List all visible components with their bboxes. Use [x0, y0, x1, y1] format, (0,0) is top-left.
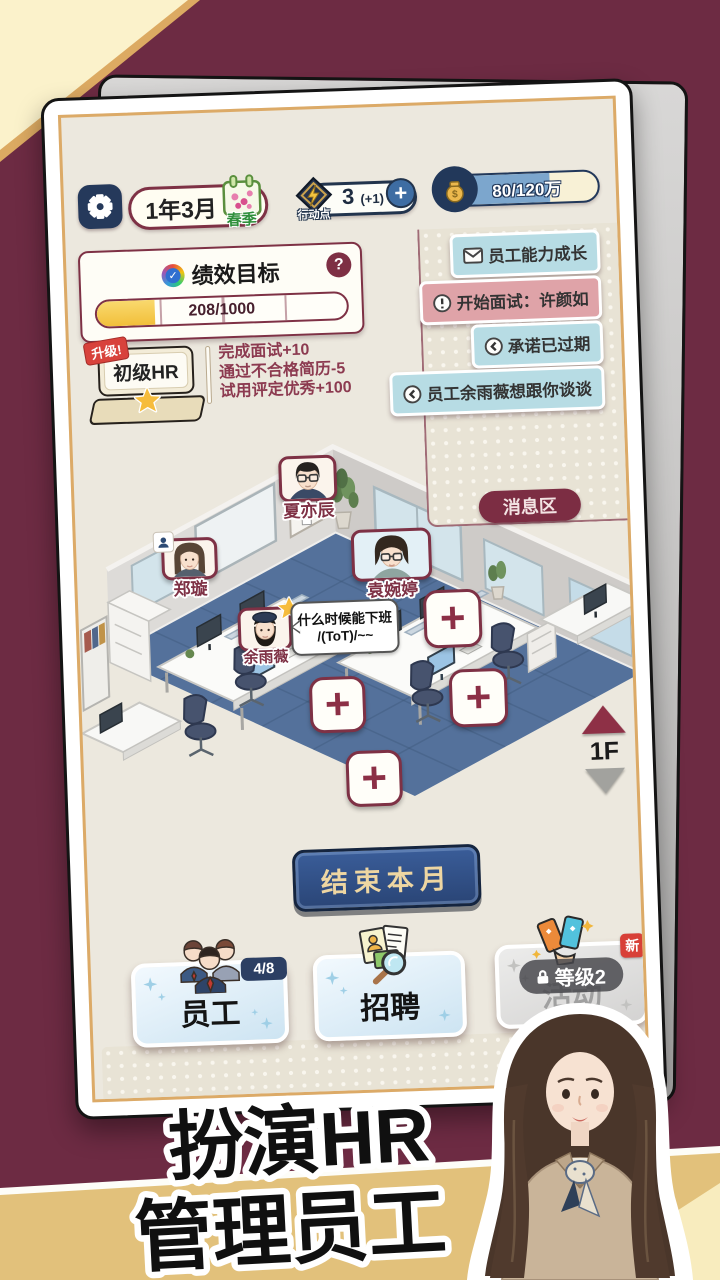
back-icon	[483, 336, 503, 356]
add-desk-button[interactable]: +	[449, 668, 509, 728]
speech-bubble: 什么时候能下班 /(ToT)/~~	[290, 598, 400, 656]
lock-icon	[536, 969, 550, 984]
hr-woman-illustration	[440, 1000, 720, 1280]
divider	[205, 346, 212, 404]
action-points-value: 3 (+1)	[342, 183, 385, 210]
employee-status-badge	[153, 531, 175, 553]
activity-lock-pill: 等级2	[519, 957, 624, 995]
notification-interview[interactable]: 开始面试：许颜如	[419, 275, 602, 325]
lock-level-label: 等级2	[554, 960, 606, 991]
banner-line2: 管理员工	[132, 1178, 448, 1280]
ap-number: 3	[342, 184, 355, 209]
floor-label: 1F	[579, 736, 630, 767]
floor-switcher: 1F	[578, 705, 631, 795]
star-icon	[133, 387, 161, 415]
back-icon	[403, 384, 423, 404]
employee-card-xiayichen[interactable]: 夏亦辰	[276, 454, 340, 522]
season-label: 春季	[226, 208, 257, 230]
mail-icon	[463, 247, 484, 264]
notification-text: 开始面试：许颜如	[456, 286, 589, 315]
gear-icon	[83, 189, 118, 224]
floor-down-button[interactable]	[585, 768, 626, 794]
hr-level-plaque[interactable]: 初级HR 升级!	[89, 345, 204, 425]
notification-text: 员工余雨薇想跟你谈谈	[426, 376, 592, 406]
notification-promise-expired[interactable]: 承诺已过期	[470, 320, 604, 369]
task-item: 试用评定优秀+100	[219, 378, 352, 402]
alert-icon	[432, 293, 452, 313]
kpi-icon: ✓	[161, 263, 185, 287]
end-month-button[interactable]: 结束本月	[292, 844, 482, 913]
kpi-progress-value: 208/1000	[96, 293, 347, 327]
bubble-line: 什么时候能下班	[292, 609, 397, 630]
add-desk-button[interactable]: +	[423, 589, 483, 649]
kpi-title: 绩效目标	[191, 255, 280, 290]
add-desk-button[interactable]: +	[345, 749, 403, 807]
female-glasses-portrait-icon	[354, 530, 430, 579]
chair-icon	[183, 694, 216, 756]
floor-up-button[interactable]	[581, 705, 626, 735]
svg-text:$: $	[452, 189, 458, 200]
employee-card-yuanwanting[interactable]: 袁婉婷	[350, 527, 434, 602]
settings-button[interactable]	[77, 184, 123, 230]
game-screen: 消息区 1年3月 春季	[0, 0, 720, 1280]
ap-bonus: (+1)	[360, 191, 384, 207]
staff-people-icon	[174, 934, 246, 994]
notification-text: 员工能力成长	[488, 240, 588, 267]
new-badge: 新	[620, 933, 645, 958]
notification-talk-request[interactable]: 员工余雨薇想跟你谈谈	[389, 365, 605, 416]
kpi-task-list: 完成面试+10 通过不合格简历-5 试用评定优秀+100	[218, 339, 352, 402]
page-content: 消息区 1年3月 春季	[58, 96, 650, 1103]
person-icon	[157, 535, 170, 548]
recruit-resume-icon	[351, 922, 417, 986]
kpi-progress-bar: 208/1000	[94, 291, 349, 329]
employee-card-zhengxuan[interactable]: 郑璇	[160, 537, 220, 601]
notification-employee-growth[interactable]: 员工能力成长	[449, 229, 600, 278]
staff-count-badge: 4/8	[240, 957, 287, 982]
message-zone-label: 消息区	[478, 488, 581, 524]
staff-label: 员工	[136, 987, 285, 1036]
bubble-line: /(ToT)/~~	[293, 626, 398, 647]
notification-text: 承诺已过期	[507, 331, 590, 358]
add-desk-button[interactable]: +	[309, 676, 367, 734]
main-page-card: 消息区 1年3月 春季	[40, 78, 667, 1120]
banner-line1: 扮演HR	[166, 1092, 432, 1191]
kpi-panel: ✓ 绩效目标 ? 208/1000	[78, 242, 365, 344]
employee-card-yuyuwei[interactable]: 余雨薇	[236, 606, 294, 668]
action-points-label: 行动点	[297, 206, 331, 223]
male-portrait-icon	[281, 458, 334, 500]
date-label: 1年3月	[131, 189, 218, 226]
